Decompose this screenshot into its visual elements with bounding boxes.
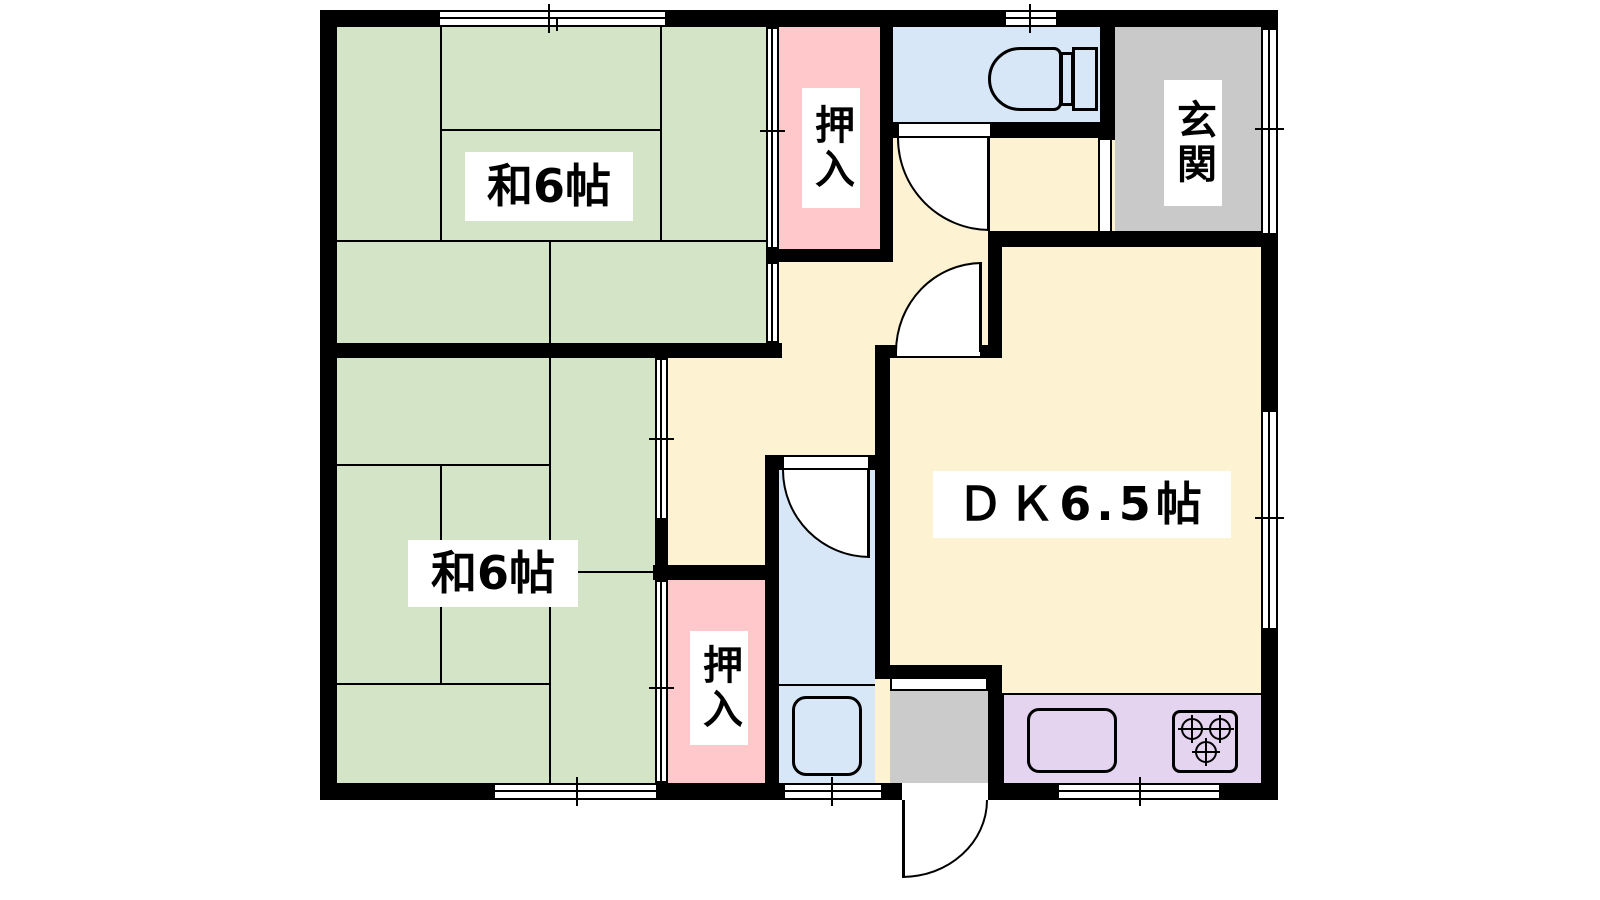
window-line	[783, 790, 883, 792]
entrance-step-edge	[1098, 138, 1112, 233]
room-label-entrance: 玄関	[1164, 80, 1222, 206]
wall-dk-door-stub-right	[980, 345, 1002, 358]
room-label-japanese-upper: 和6帖	[465, 152, 633, 221]
tatami-line	[660, 17, 662, 242]
window-line	[1268, 410, 1270, 630]
doorway-back-exit	[902, 783, 988, 800]
window-tick	[831, 777, 833, 806]
tatami-line	[440, 129, 660, 131]
wall-bath-left	[765, 455, 779, 783]
window-tick	[556, 18, 558, 31]
window-line	[438, 17, 667, 19]
toilet-tank-icon	[1072, 47, 1098, 111]
window-tick	[1029, 4, 1031, 33]
wall-between-tatami-rooms	[320, 343, 782, 358]
kitchen-sink-icon	[1027, 708, 1117, 773]
room-label-dining-kitchen: ＤＫ6.5帖	[933, 471, 1231, 538]
wall-entrance-dk-top	[988, 231, 1278, 247]
window-tick	[1139, 777, 1141, 806]
wall-hall-dk-vertical	[988, 231, 1002, 358]
fusuma-line	[660, 580, 662, 783]
fusuma-joint-lower	[655, 520, 668, 580]
stove-burner-icon	[1209, 718, 1231, 740]
tatami-line	[327, 683, 549, 685]
wall-bath-top-right-stub	[868, 455, 890, 470]
wall-toilet-bottom-right	[992, 122, 1112, 138]
room-label-closet-upper: 押入	[802, 88, 860, 208]
window-tick	[576, 777, 578, 806]
window-tick	[548, 4, 550, 33]
wall-toilet-bottom-left	[880, 122, 897, 138]
back-landing-floor	[890, 691, 988, 783]
sliding-door-line	[1268, 28, 1270, 235]
room-label-closet-lower: 押入	[690, 631, 748, 745]
tatami-line	[549, 242, 551, 351]
door-arc-back-exit	[902, 800, 988, 878]
wall-closet-upper-bottom	[779, 249, 880, 262]
wall-left	[320, 10, 337, 800]
doorway-toilet	[897, 122, 992, 138]
bathtub-icon	[792, 696, 862, 776]
window-tick	[1255, 517, 1284, 519]
doorway-back-landing	[890, 677, 988, 691]
stove-burner-icon	[1181, 718, 1203, 740]
wall-closet-lower-top	[653, 565, 767, 580]
window-line	[1004, 17, 1058, 19]
fusuma-tick	[649, 687, 674, 689]
toilet-bowl-icon	[988, 47, 1062, 111]
floor-plan: 和6帖 和6帖 ＤＫ6.5帖 玄関 押入 押入	[0, 0, 1600, 900]
tatami-line	[327, 464, 549, 466]
fusuma-line	[771, 27, 773, 249]
tatami-line	[327, 240, 766, 242]
wall-landing-kitchen	[988, 677, 1002, 783]
fusuma-tick	[649, 438, 674, 440]
doorway-bathroom	[782, 455, 870, 470]
fusuma-tick	[760, 130, 785, 132]
wall-hall-bath-dk	[875, 345, 890, 679]
sliding-door-tick	[1255, 128, 1284, 130]
room-label-japanese-lower: 和6帖	[408, 540, 578, 607]
wall-toilet-entrance	[1100, 10, 1115, 140]
fusuma-line	[771, 262, 773, 343]
stove-burner-icon	[1195, 741, 1217, 763]
bathroom-divider-line	[779, 684, 875, 686]
fusuma-joint-upper	[766, 249, 779, 262]
